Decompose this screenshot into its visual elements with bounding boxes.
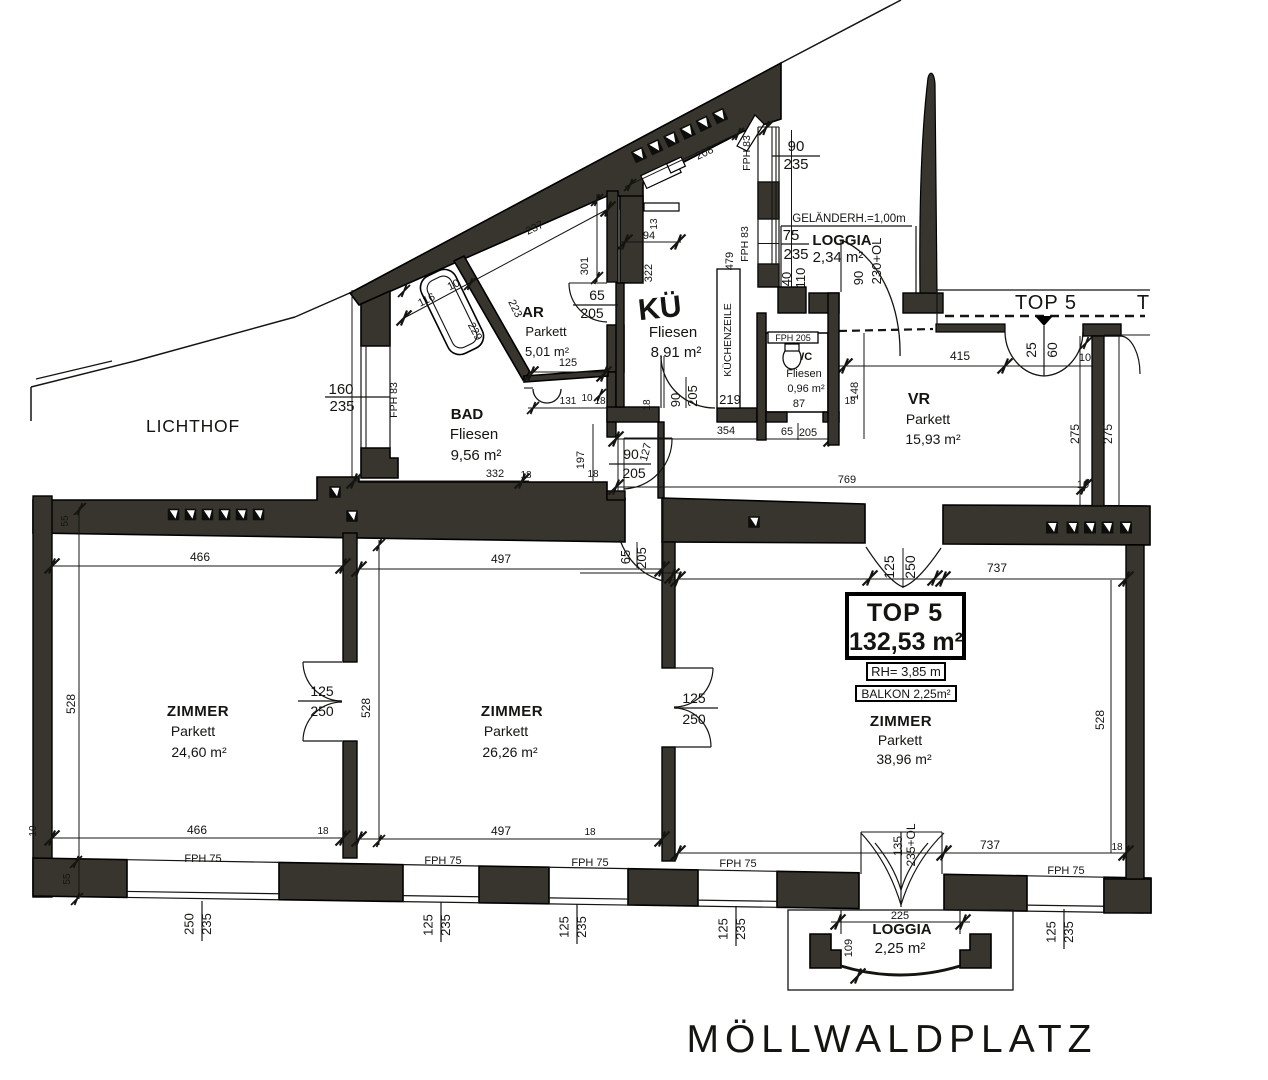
svg-text:250: 250 [902,555,918,579]
svg-text:ZIMMER: ZIMMER [870,713,932,730]
svg-text:FPH 75: FPH 75 [1047,865,1084,877]
svg-text:Parkett: Parkett [878,732,922,748]
svg-text:MÖLLWALDPLATZ: MÖLLWALDPLATZ [686,1018,1097,1061]
svg-text:2,34 m²: 2,34 m² [813,249,864,266]
svg-text:T: T [1137,292,1149,314]
svg-text:125: 125 [682,690,706,706]
svg-text:38,96 m²: 38,96 m² [876,751,932,767]
svg-text:132,53 m²: 132,53 m² [849,628,963,656]
svg-text:LICHTHOF: LICHTHOF [146,416,240,436]
svg-text:125: 125 [557,916,572,938]
svg-text:0,96 m²: 0,96 m² [787,383,825,395]
svg-text:13: 13 [649,218,660,230]
svg-text:235: 235 [329,398,354,415]
svg-text:18: 18 [844,396,856,407]
svg-text:528: 528 [1093,710,1107,730]
svg-text:65: 65 [589,287,605,303]
svg-text:Parkett: Parkett [525,324,567,339]
svg-text:VR: VR [908,391,931,408]
svg-text:GELÄNDERH.=1,00m: GELÄNDERH.=1,00m [792,213,905,225]
svg-text:205: 205 [799,427,817,439]
svg-text:769: 769 [838,474,856,486]
svg-text:90: 90 [788,138,805,155]
svg-text:Fliesen: Fliesen [786,368,821,380]
svg-text:197: 197 [575,451,587,469]
svg-text:FPH 75: FPH 75 [719,858,756,870]
svg-text:9,56 m²: 9,56 m² [451,447,502,464]
svg-text:235: 235 [574,916,589,938]
svg-text:ZIMMER: ZIMMER [167,703,229,720]
svg-text:250: 250 [682,711,706,727]
svg-text:TOP 5: TOP 5 [1015,292,1077,314]
svg-text:FPH 75: FPH 75 [184,853,221,865]
svg-text:18: 18 [1111,842,1123,853]
svg-text:125: 125 [1044,921,1059,943]
svg-text:109: 109 [843,939,855,957]
svg-text:125: 125 [881,555,897,579]
svg-text:301: 301 [579,257,591,275]
svg-text:235: 235 [438,914,453,936]
svg-text:10: 10 [581,393,593,404]
svg-text:354: 354 [717,425,735,437]
svg-text:75: 75 [783,227,800,244]
svg-text:24,60 m²: 24,60 m² [171,744,227,760]
svg-text:125: 125 [716,918,731,940]
svg-text:160: 160 [328,381,353,398]
svg-text:FPH 75: FPH 75 [424,855,461,867]
svg-text:528: 528 [359,698,373,718]
svg-text:90: 90 [851,271,866,285]
svg-text:RH= 3,85 m: RH= 3,85 m [871,664,941,679]
svg-text:FPH 83: FPH 83 [739,226,751,262]
svg-text:235: 235 [199,913,214,935]
svg-text:466: 466 [187,823,207,837]
svg-text:8,91 m²: 8,91 m² [651,344,702,361]
svg-text:235: 235 [783,246,808,263]
svg-text:125: 125 [421,914,436,936]
svg-text:TOP 5: TOP 5 [867,599,943,627]
svg-text:415: 415 [950,349,970,363]
svg-text:131: 131 [560,396,577,407]
svg-text:FPH 83: FPH 83 [388,382,400,418]
svg-text:BALKON 2,25m²: BALKON 2,25m² [861,687,950,701]
svg-text:110: 110 [793,268,808,289]
svg-text:87: 87 [793,398,805,410]
svg-text:FPH 83: FPH 83 [741,135,753,171]
svg-text:235: 235 [733,918,748,940]
svg-text:125: 125 [559,357,577,369]
svg-text:90: 90 [623,446,639,462]
svg-text:18: 18 [587,469,599,480]
svg-text:528: 528 [64,694,78,714]
svg-text:10: 10 [28,825,39,837]
svg-text:737: 737 [980,838,1000,852]
svg-text:235+OL: 235+OL [904,823,918,866]
svg-text:135: 135 [891,836,905,856]
svg-text:Fliesen: Fliesen [450,426,498,443]
svg-text:125: 125 [310,683,334,699]
svg-text:LOGGIA: LOGGIA [872,921,931,938]
svg-text:205: 205 [622,465,646,481]
svg-text:60: 60 [1044,342,1060,358]
svg-text:250: 250 [310,703,334,719]
svg-text:15,93 m²: 15,93 m² [905,431,961,447]
svg-text:94: 94 [643,230,655,242]
svg-text:25: 25 [1023,342,1039,358]
svg-text:FPH 75: FPH 75 [571,857,608,869]
svg-text:235: 235 [783,156,808,173]
svg-text:250: 250 [182,913,197,935]
svg-text:332: 332 [486,468,504,480]
svg-text:FPH 205: FPH 205 [775,333,811,343]
svg-text:55: 55 [60,515,71,527]
svg-text:205: 205 [685,385,700,407]
svg-text:18: 18 [317,826,329,837]
svg-text:497: 497 [491,824,511,838]
svg-text:55: 55 [62,873,73,885]
svg-text:AR: AR [522,304,544,321]
svg-text:18: 18 [520,470,532,481]
svg-text:Parkett: Parkett [484,723,528,739]
svg-text:BAD: BAD [451,406,484,423]
svg-text:466: 466 [190,550,210,564]
svg-text:497: 497 [491,552,511,566]
svg-text:235: 235 [1061,921,1076,943]
svg-text:Parkett: Parkett [906,411,950,427]
svg-text:322: 322 [643,264,655,282]
svg-text:2,25 m²: 2,25 m² [875,940,926,957]
svg-text:10: 10 [1079,352,1091,364]
svg-text:40: 40 [779,272,794,286]
svg-text:KÜCHENZEILE: KÜCHENZEILE [722,303,734,377]
svg-text:737: 737 [987,561,1007,575]
svg-text:Fliesen: Fliesen [649,324,697,341]
svg-text:90: 90 [668,393,683,407]
svg-text:KÜ: KÜ [637,290,684,327]
svg-text:ZIMMER: ZIMMER [481,703,543,720]
svg-text:Parkett: Parkett [171,723,215,739]
svg-text:479: 479 [724,252,736,270]
svg-text:26,26 m²: 26,26 m² [482,744,538,760]
svg-text:219: 219 [719,392,741,407]
svg-text:18: 18 [584,827,596,838]
svg-text:65: 65 [781,426,793,438]
svg-text:18: 18 [642,399,653,411]
svg-text:275: 275 [1101,424,1115,444]
